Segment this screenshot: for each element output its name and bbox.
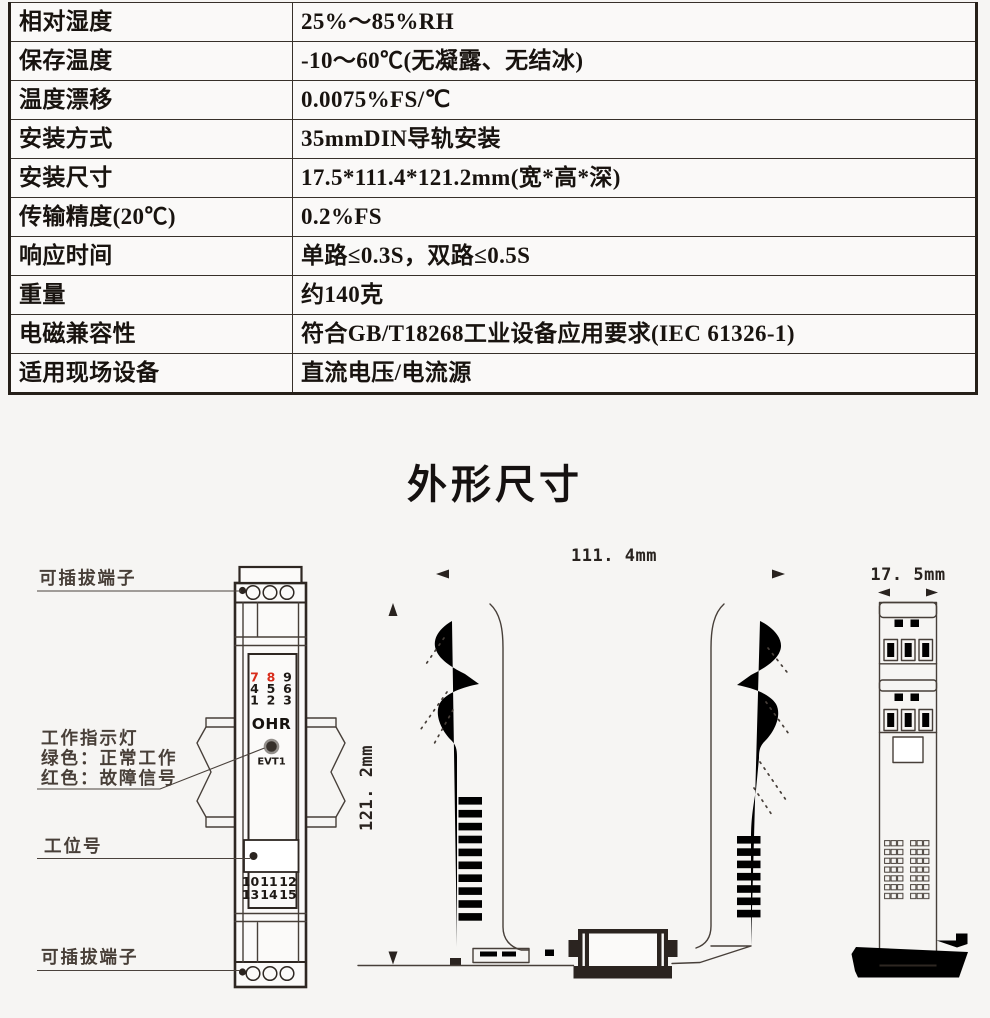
leader-dot xyxy=(250,852,258,860)
brand-logo: OHR xyxy=(252,715,292,733)
station-number-box xyxy=(244,840,299,872)
vent-slots-right xyxy=(737,836,761,917)
dimension-width-label: 111. 4mm xyxy=(571,546,657,566)
terminal-number: 13 xyxy=(242,887,259,902)
label-terminal-bottom: 可插拔端子 xyxy=(41,947,139,967)
led-label: EVT1 xyxy=(257,757,285,768)
leader-dot xyxy=(239,968,246,975)
module-top-cap xyxy=(240,567,302,583)
front-view-drawing: 7 8 9 4 5 6 1 2 3 OHR EVT1 10 11 12 13 xyxy=(37,567,345,987)
dimension-width: 111. 4mm xyxy=(434,546,788,757)
dimension-depth: 17. 5mm xyxy=(870,565,945,601)
label-terminal-top: 可插拔端子 xyxy=(39,568,137,588)
end-connector xyxy=(893,737,923,763)
dimension-height: 121. 2mm xyxy=(357,603,398,965)
terminal-number: 3 xyxy=(283,693,292,708)
dimension-depth-label: 17. 5mm xyxy=(870,565,945,585)
terminal-numbers-top: 7 8 9 4 5 6 1 2 3 xyxy=(250,670,292,708)
terminal-number: 15 xyxy=(279,887,296,902)
din-rail-cross-section xyxy=(852,934,969,978)
terminal-numbers-bottom: 10 11 12 13 14 15 xyxy=(242,874,297,902)
module-body xyxy=(235,583,306,987)
outline-dimension-drawing: 7 8 9 4 5 6 1 2 3 OHR EVT1 10 11 12 13 xyxy=(0,0,990,1018)
end-terminals-top xyxy=(884,640,933,661)
vent-grid-left xyxy=(884,840,904,901)
terminal-number: 1 xyxy=(250,693,259,708)
din-rail-clip xyxy=(569,929,678,979)
label-station-number: 工位号 xyxy=(44,836,103,856)
terminal-number: 14 xyxy=(260,887,278,902)
terminal-number: 2 xyxy=(267,693,276,708)
label-indicator-title: 工作指示灯 xyxy=(41,728,139,748)
side-view-drawing: 111. 4mm 121. 2mm xyxy=(357,546,791,979)
dimension-height-label: 121. 2mm xyxy=(357,745,377,831)
vent-slots-left xyxy=(459,797,483,921)
vent-grid-right xyxy=(910,840,930,901)
base-mechanism xyxy=(450,937,578,966)
led-indicator xyxy=(264,739,280,755)
label-indicator-red: 红色：故障信号 xyxy=(41,768,178,788)
end-terminals-bottom xyxy=(884,710,933,731)
end-view-drawing: 17. 5mm xyxy=(852,565,969,978)
label-indicator-green: 绿色：正常工作 xyxy=(41,748,178,768)
